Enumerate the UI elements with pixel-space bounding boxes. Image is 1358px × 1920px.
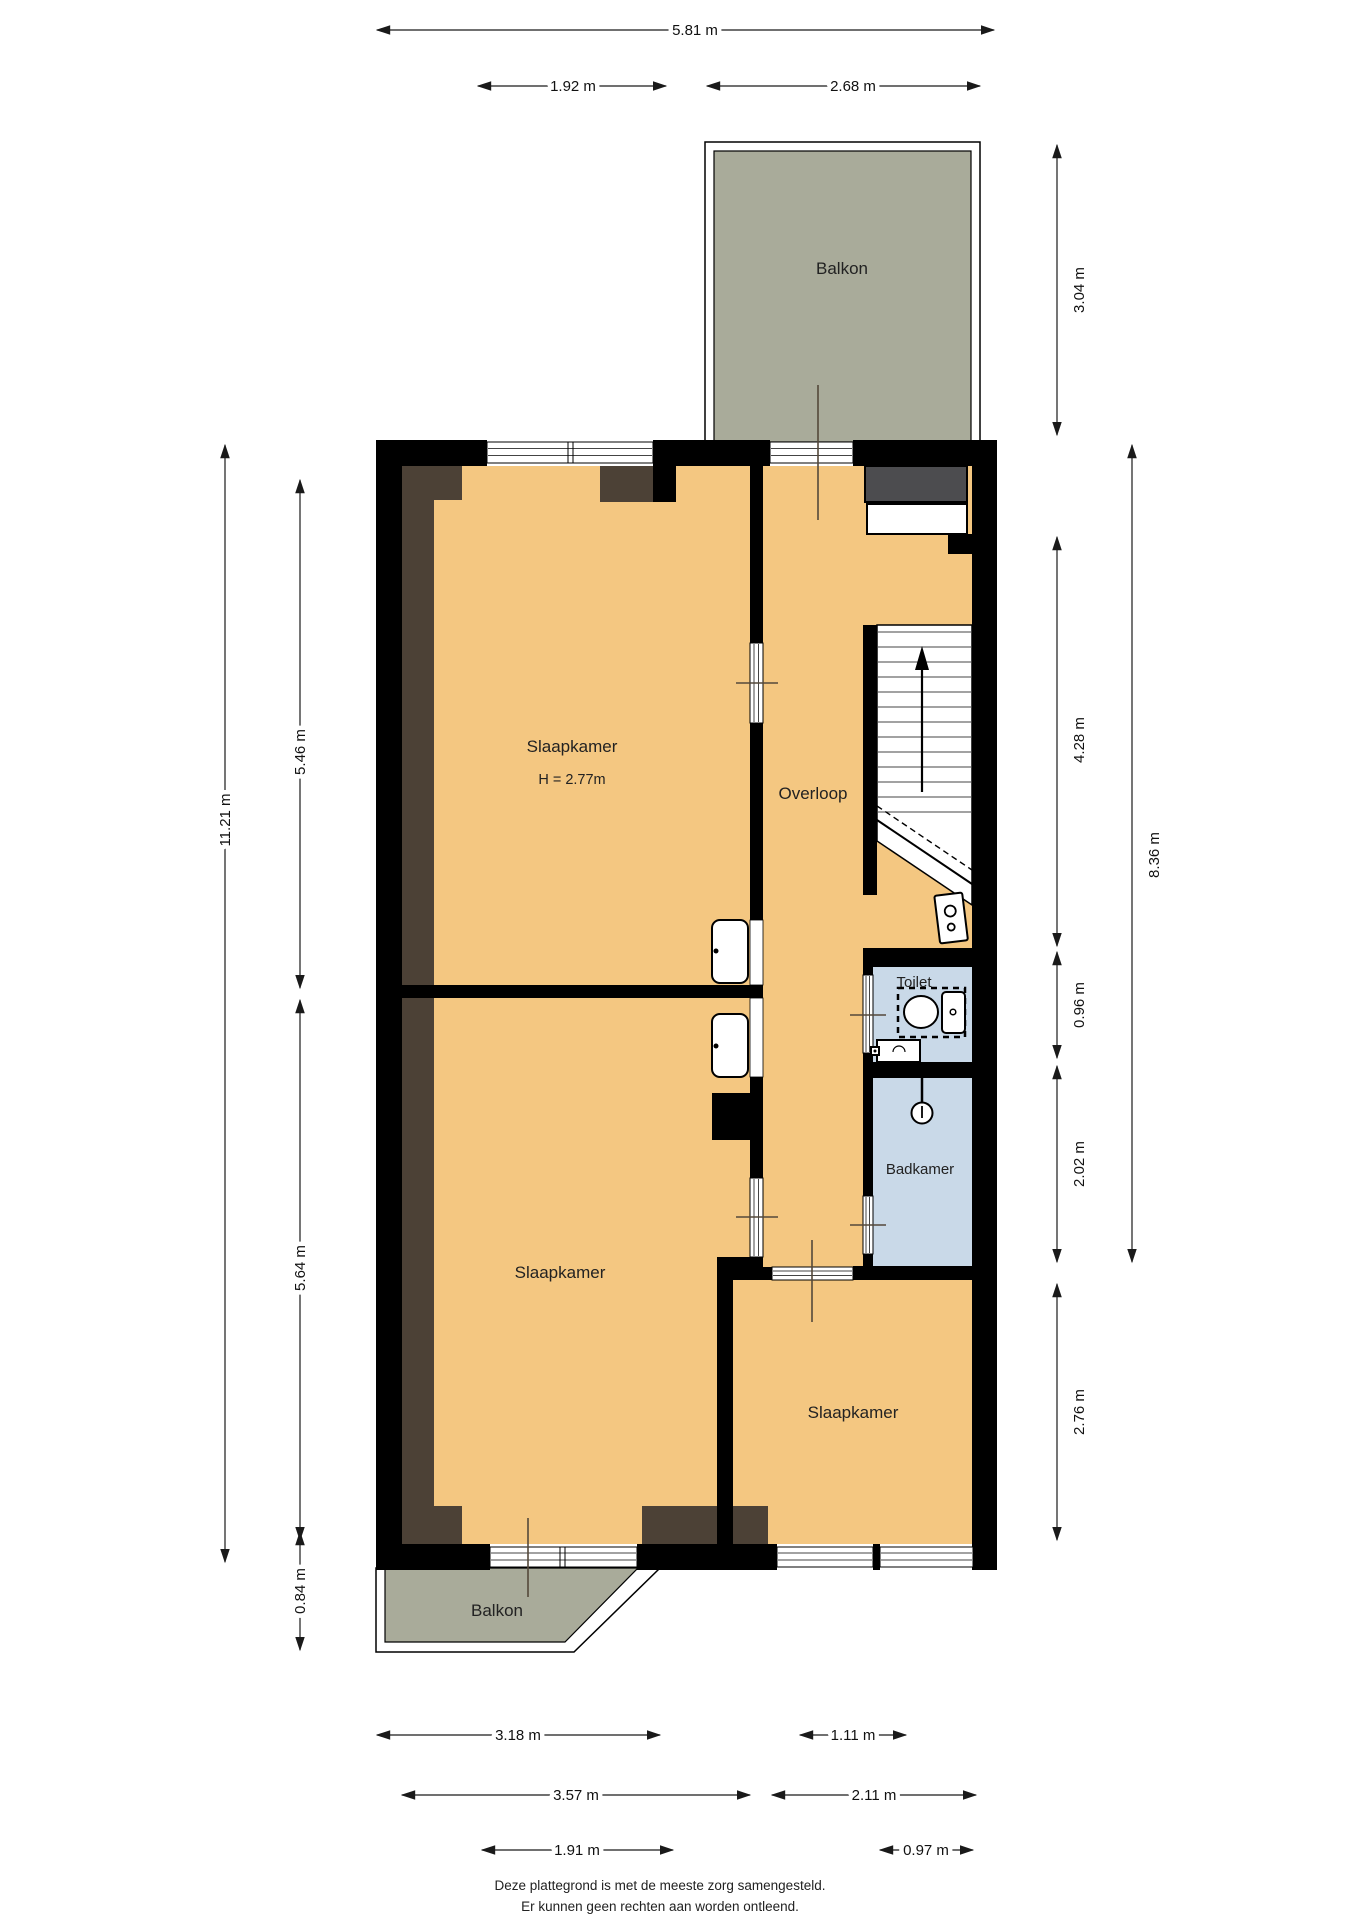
bedroom1-height-label: H = 2.77m xyxy=(538,772,605,788)
stairs-railing-wall xyxy=(863,625,877,895)
footer-line-1: Deze plattegrond is met de meeste zorg s… xyxy=(495,1878,826,1893)
svg-text:0.97 m: 0.97 m xyxy=(903,1842,949,1859)
door-opening-bedroom1 xyxy=(750,920,763,985)
door-opening-bedroom2 xyxy=(750,998,763,1077)
door-leaf-bedroom1 xyxy=(712,920,748,983)
badkamer-label: Badkamer xyxy=(886,1161,954,1178)
floorplan-page: Balkon Balkon xyxy=(0,0,1358,1920)
svg-text:0.84 m: 0.84 m xyxy=(292,1568,309,1614)
svg-text:4.28 m: 4.28 m xyxy=(1071,717,1088,763)
svg-text:3.57 m: 3.57 m xyxy=(553,1787,599,1804)
svg-text:1.92 m: 1.92 m xyxy=(550,78,596,95)
svg-text:5.81 m: 5.81 m xyxy=(672,22,718,39)
svg-text:5.46 m: 5.46 m xyxy=(292,729,309,775)
balcony-bottom-label: Balkon xyxy=(471,1601,523,1620)
balcony-top: Balkon xyxy=(705,142,980,442)
balcony-top-label: Balkon xyxy=(816,259,868,278)
svg-text:1.11 m: 1.11 m xyxy=(831,1727,876,1744)
bedroom3-label: Slaapkamer xyxy=(808,1403,899,1422)
svg-text:1.91 m: 1.91 m xyxy=(554,1842,600,1859)
niche-top-right xyxy=(865,466,967,534)
svg-text:8.36 m: 8.36 m xyxy=(1146,832,1163,878)
bedroom2-label: Slaapkamer xyxy=(515,1263,606,1282)
svg-text:2.76 m: 2.76 m xyxy=(1071,1389,1088,1435)
svg-text:5.64 m: 5.64 m xyxy=(292,1245,309,1291)
svg-text:3.18 m: 3.18 m xyxy=(495,1727,541,1744)
svg-text:11.21 m: 11.21 m xyxy=(217,793,234,846)
svg-text:2.02 m: 2.02 m xyxy=(1071,1141,1088,1187)
door-leaf-bedroom2 xyxy=(712,1014,748,1077)
window-bottom-right-2 xyxy=(880,1547,973,1567)
floorplan-drawing: Balkon Balkon xyxy=(0,0,1358,1920)
window-top-left xyxy=(487,442,653,463)
overloop-label: Overloop xyxy=(779,784,848,803)
svg-text:2.11 m: 2.11 m xyxy=(852,1787,897,1804)
boiler-unit xyxy=(934,892,968,943)
svg-text:2.68 m: 2.68 m xyxy=(830,78,876,95)
footer-line-2: Er kunnen geen rechten aan worden ontlee… xyxy=(521,1899,799,1914)
svg-text:3.04 m: 3.04 m xyxy=(1071,267,1088,313)
chimney-block xyxy=(712,1093,750,1140)
toilet-sink xyxy=(871,1040,920,1062)
window-bottom-right-1 xyxy=(777,1547,873,1567)
svg-text:0.96 m: 0.96 m xyxy=(1071,982,1088,1028)
bedroom1-label: Slaapkamer xyxy=(527,737,618,756)
toilet-label: Toilet xyxy=(896,974,932,991)
